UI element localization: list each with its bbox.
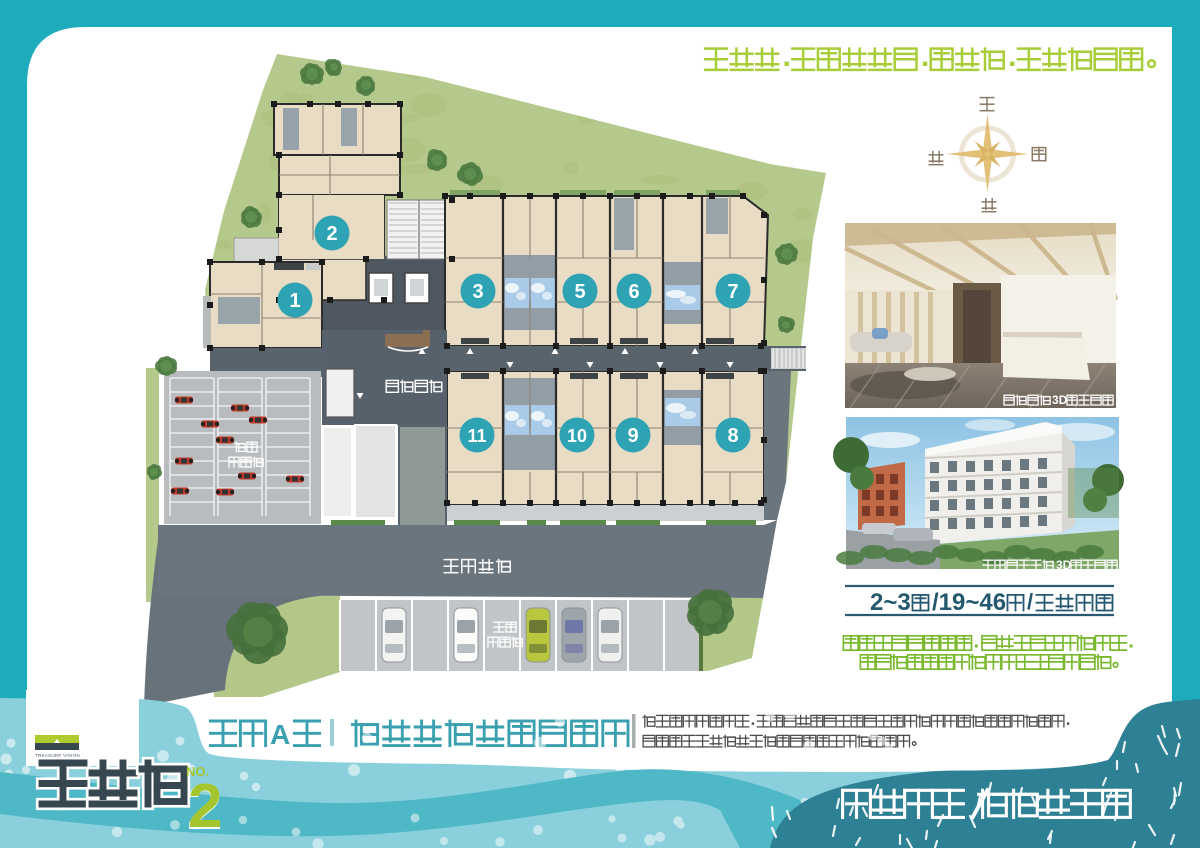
svg-text:/19~46: /19~46 (932, 589, 1006, 616)
svg-text:A: A (270, 719, 290, 750)
svg-text:1: 1 (289, 290, 300, 312)
svg-text:6: 6 (628, 281, 639, 303)
svg-text:2~3: 2~3 (870, 589, 911, 616)
svg-text:3: 3 (472, 281, 483, 303)
svg-text:11: 11 (467, 426, 486, 446)
svg-text:2: 2 (326, 223, 337, 245)
svg-text:/: / (1027, 589, 1033, 614)
svg-text:9: 9 (627, 425, 638, 447)
svg-text:7: 7 (727, 281, 738, 303)
svg-text:2: 2 (188, 772, 222, 841)
svg-text:3D: 3D (1056, 558, 1072, 572)
svg-text:3D: 3D (1052, 393, 1068, 407)
svg-text:10: 10 (567, 426, 587, 446)
svg-text:8: 8 (727, 425, 738, 447)
svg-text:5: 5 (574, 281, 585, 303)
